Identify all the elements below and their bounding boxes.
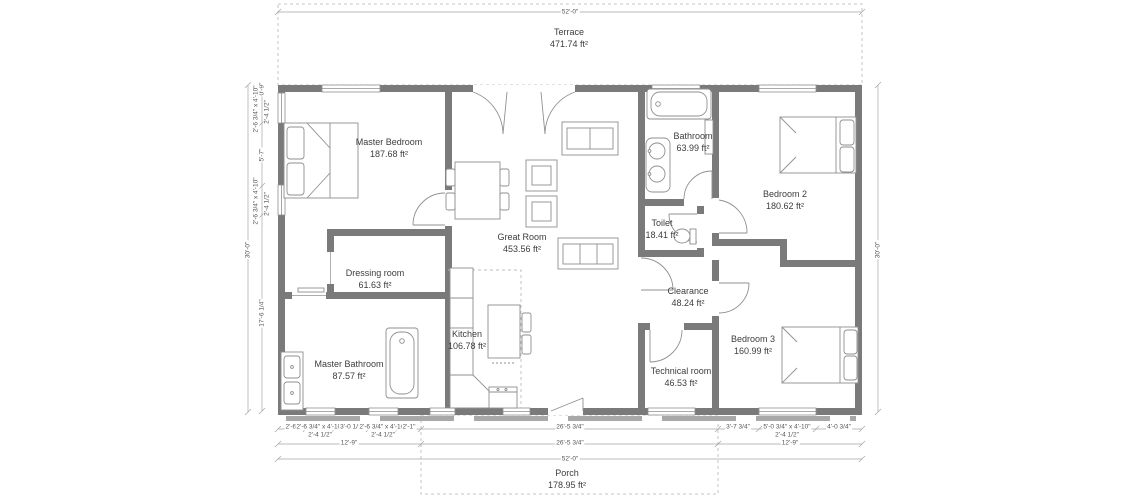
dim-b1-seg3: 2'-1" — [402, 424, 417, 431]
sofa-bottom — [558, 238, 618, 269]
kitchen-sink-unit — [489, 387, 517, 408]
bed-master-bedroom — [284, 123, 358, 198]
dim-bottom-width: 52'-0" — [561, 456, 580, 463]
vanity-master-bathroom — [281, 352, 303, 410]
room-label-bedroom3: Bedroom 3160.99 ft² — [731, 333, 775, 357]
window-bottom-kitchen-2 — [503, 408, 530, 415]
dim-b1-seg4: 3'-7 3/4" — [725, 424, 751, 431]
dim-left-sill2: 2'-4 1/2" — [264, 191, 271, 217]
door-bedroom2 — [719, 200, 747, 233]
room-label-bedroom2: Bedroom 2180.62 ft² — [763, 188, 807, 212]
window-bottom-kitchen-1 — [430, 408, 455, 415]
floor-plan-page: Terrace471.74 ft² Master Bedroom187.68 f… — [0, 0, 1140, 500]
dim-b1-sill3: 2'-4 1/2" — [774, 432, 800, 439]
dim-right-height: 30'-0" — [875, 241, 882, 260]
dim-top-width: 52'-0" — [561, 9, 580, 16]
dim-b1-window3: 5'-0 3/4" x 4'-10" — [762, 424, 811, 431]
dim-b1-sill1: 2'-4 1/2" — [307, 432, 333, 439]
dim-b2-center: 26'-5 3/4" — [555, 440, 584, 447]
dim-left-seg-top: 0'-9" — [259, 82, 266, 97]
room-label-terrace: Terrace471.74 ft² — [550, 26, 588, 50]
dim-left-window1: 2'-6 3/4" x 4'-10" — [253, 84, 260, 133]
window-left-1 — [278, 93, 285, 123]
dim-left-window2: 2'-6 3/4" x 4'-10" — [253, 176, 260, 225]
room-label-master-bedroom: Master Bedroom187.68 ft² — [356, 136, 423, 160]
sofa-top — [562, 122, 618, 155]
kitchen-island — [488, 305, 531, 363]
dim-b1-sill2: 2'-4 1/2" — [370, 432, 396, 439]
room-label-dressing: Dressing room61.63 ft² — [346, 267, 405, 291]
bed-bedroom2 — [780, 117, 856, 173]
dim-b1-window1: 2'-6 3/4" x 4'-10" — [295, 424, 344, 431]
door-master-bedroom — [413, 193, 445, 225]
dim-b1-seg5: 4'-0 3/4" — [826, 424, 852, 431]
window-bottom-bedroom3 — [759, 408, 816, 415]
dim-b2-left: 12'-9" — [340, 440, 359, 447]
door-bedroom3 — [719, 283, 749, 313]
dim-left-height: 30'-0" — [245, 241, 252, 260]
room-label-bathroom: Bathroom63.99 ft² — [673, 130, 712, 154]
dim-left-seg-mid: 5'-7" — [259, 148, 266, 163]
window-top-bedroom2 — [759, 85, 816, 92]
window-bottom-1 — [306, 408, 335, 415]
vanity-bathroom — [646, 138, 670, 192]
room-label-clearance: Clearance48.24 ft² — [667, 285, 708, 309]
window-bottom-2 — [369, 408, 398, 415]
dim-b1-window2: 2'-6 3/4" x 4'-10" — [358, 424, 407, 431]
room-label-great-room: Great Room453.56 ft² — [497, 231, 546, 255]
room-label-toilet: Toilet18.41 ft² — [645, 217, 678, 241]
dim-b2-right: 12'-9" — [781, 440, 800, 447]
bathtub-master-bathroom — [386, 328, 418, 398]
dim-left-seg-bottom: 17'-6 1/4" — [259, 298, 266, 327]
dining-table — [446, 162, 509, 219]
room-label-technical: Technical room46.53 ft² — [651, 365, 712, 389]
room-label-master-bathroom: Master Bathroom87.57 ft² — [314, 358, 383, 382]
bed-bedroom3 — [782, 327, 858, 383]
room-label-kitchen: Kitchen106.78 ft² — [448, 328, 486, 352]
dim-left-sill1: 2'-4 1/2" — [264, 99, 271, 125]
door-bathroom — [684, 171, 712, 199]
armchairs — [526, 160, 557, 227]
room-label-porch: Porch178.95 ft² — [548, 467, 586, 491]
french-doors-terrace — [473, 92, 575, 134]
window-top-master-bedroom — [322, 85, 380, 92]
door-technical — [650, 330, 682, 362]
dim-b1-center: 26'-5 3/4" — [555, 424, 584, 431]
window-bottom-technical — [648, 408, 695, 415]
bathtub-bathroom — [647, 89, 711, 119]
